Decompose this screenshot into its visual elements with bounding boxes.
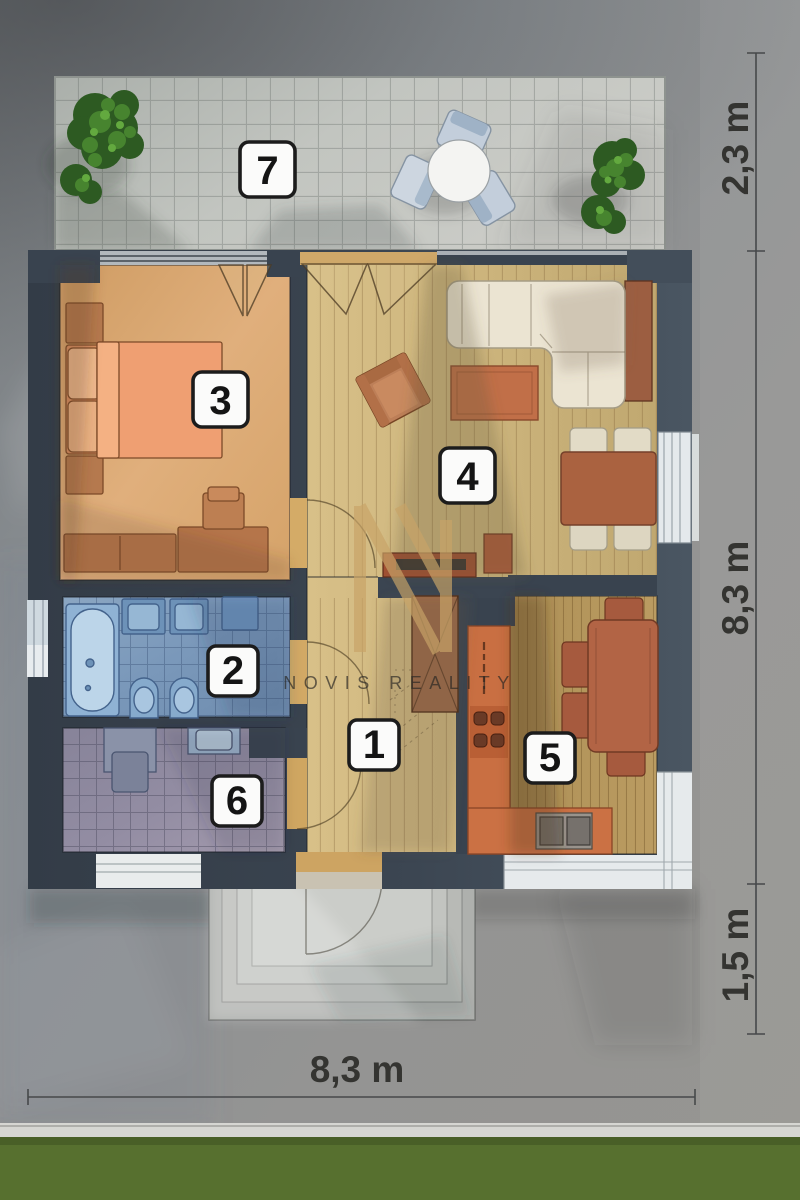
svg-text:7: 7: [256, 149, 278, 193]
svg-text:4: 4: [456, 455, 479, 499]
svg-text:8,3 m: 8,3 m: [310, 1049, 405, 1090]
svg-text:6: 6: [226, 779, 248, 823]
svg-text:5: 5: [539, 736, 561, 780]
svg-text:2,3 m: 2,3 m: [715, 101, 756, 196]
svg-text:2: 2: [222, 649, 244, 693]
svg-text:1: 1: [363, 723, 385, 767]
svg-text:8,3 m: 8,3 m: [715, 541, 756, 636]
svg-text:3: 3: [209, 379, 231, 423]
svg-text:NOVIS REALITY: NOVIS REALITY: [283, 673, 517, 693]
svg-text:1,5 m: 1,5 m: [715, 908, 756, 1003]
